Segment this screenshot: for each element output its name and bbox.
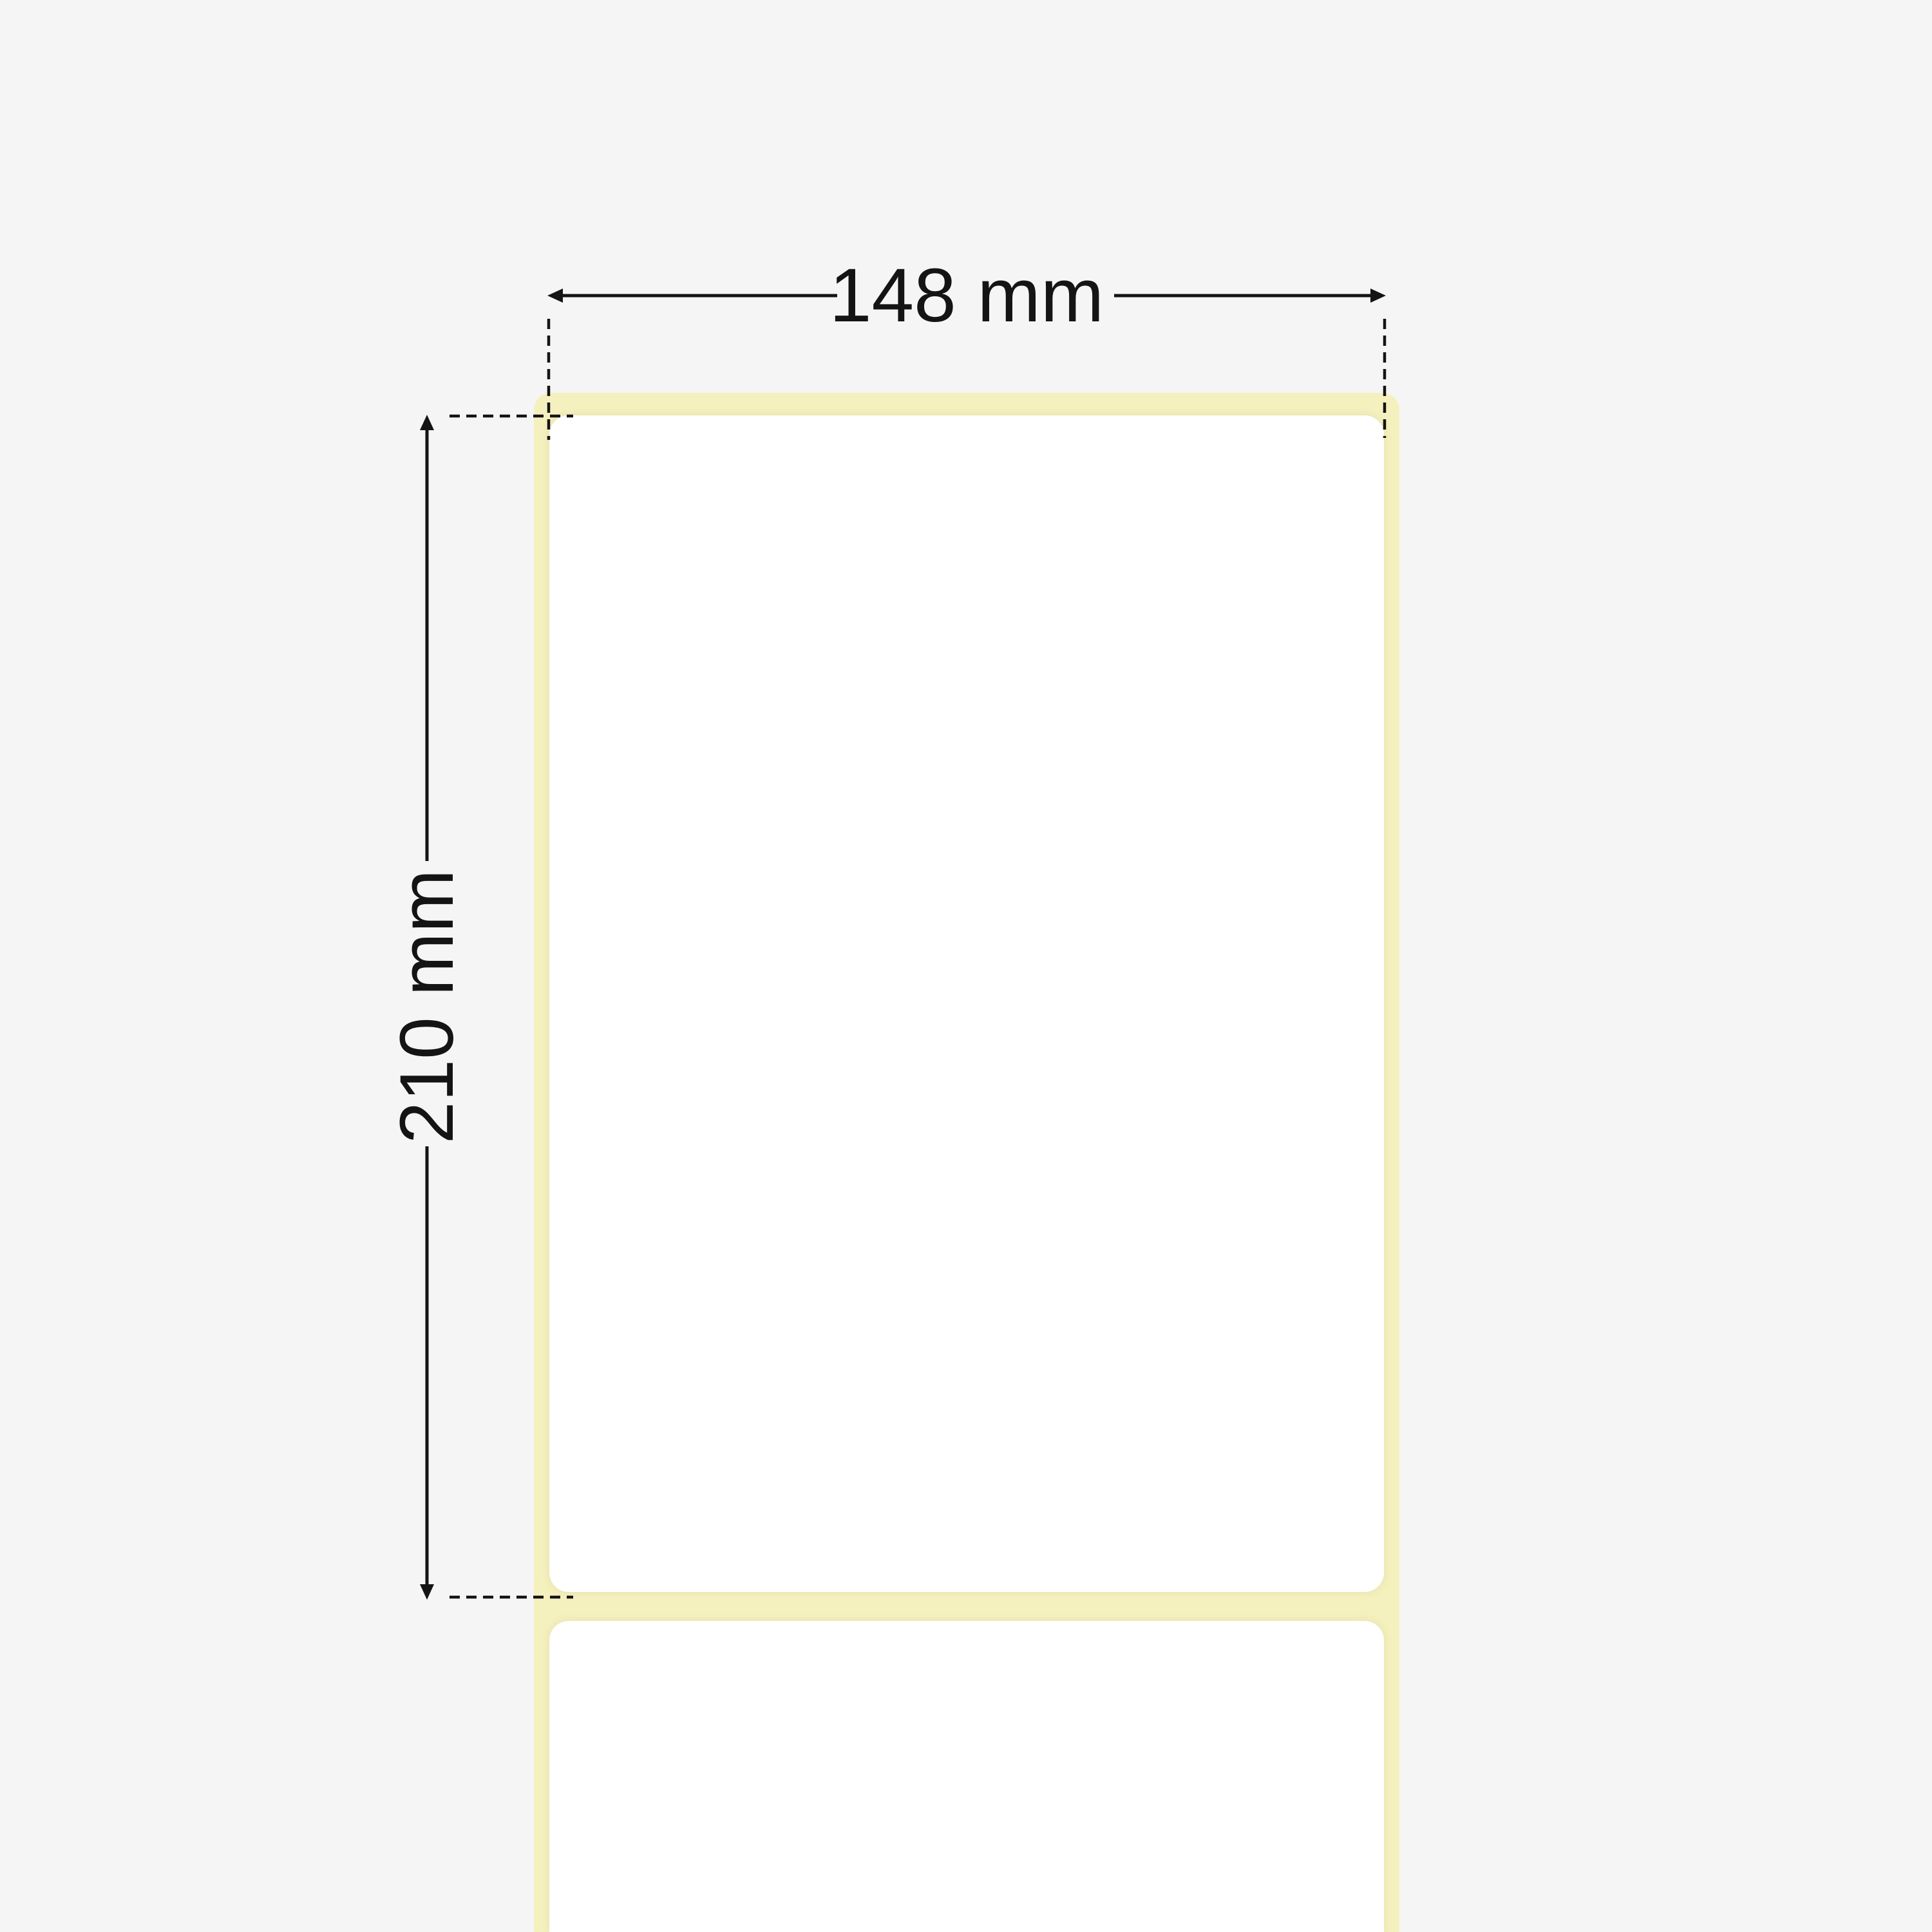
height-dimension-label: 210 mm [389, 869, 465, 1144]
arrow-up-icon [420, 415, 434, 430]
width-dimension-label: 148 mm [829, 258, 1104, 334]
arrow-down-icon [420, 1584, 434, 1600]
arrow-right-icon [1370, 289, 1386, 303]
arrow-left-icon [547, 289, 563, 303]
label-diagram: 148 mm 210 mm [0, 0, 1932, 1932]
